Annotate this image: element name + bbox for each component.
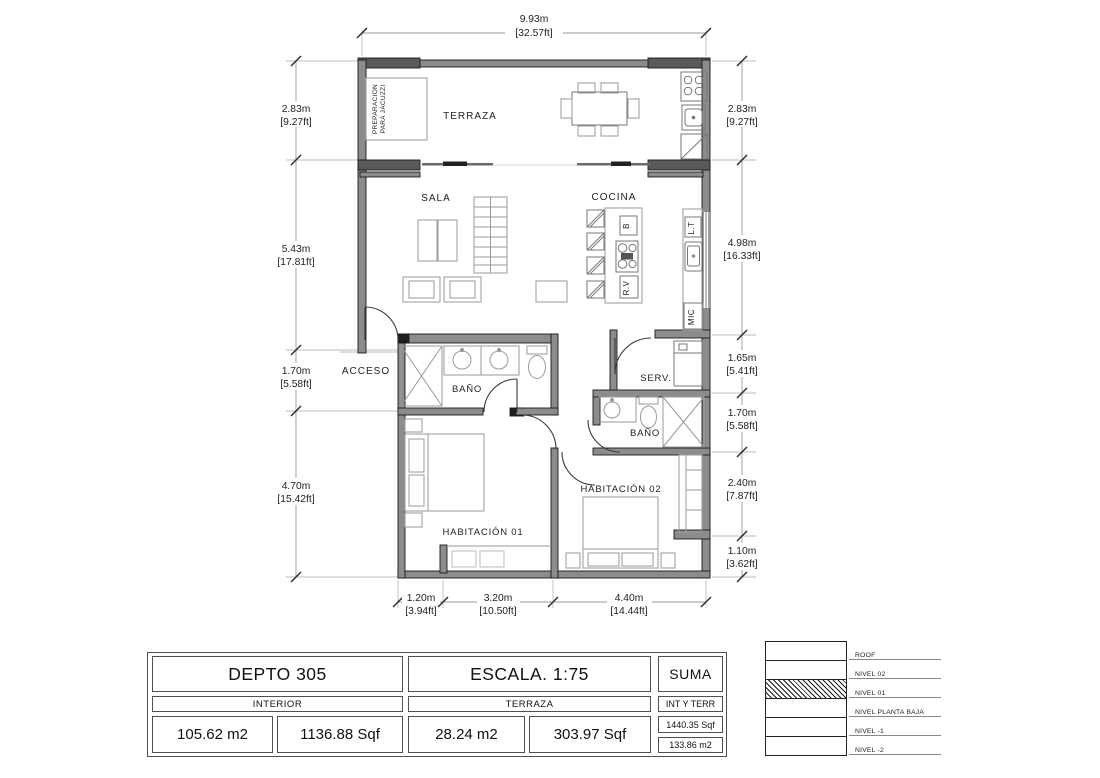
nightstand	[566, 553, 580, 568]
dim-left-3-ft: [15.42ft]	[277, 494, 314, 505]
level-box-roof	[765, 641, 847, 661]
sink-icon	[604, 402, 620, 418]
dim-left-0-ft: [9.27ft]	[280, 117, 312, 128]
dim-right-0-ft: [9.27ft]	[726, 117, 758, 128]
sliding-panel-left-handle	[443, 162, 467, 167]
walls	[358, 58, 710, 578]
laundry-unit	[674, 341, 702, 386]
dim-right-4-m: 2.40m	[728, 478, 757, 489]
sink-icon	[490, 351, 508, 369]
armchair	[403, 277, 440, 302]
dim-right-2-ft: [5.41ft]	[726, 366, 758, 377]
dim-left-0-m: 2.83m	[282, 104, 311, 115]
closet-module	[480, 551, 504, 567]
window-cocina	[702, 212, 710, 308]
sofa	[474, 197, 507, 273]
level-box-planta-baja	[765, 698, 847, 718]
hab02-door-arc	[562, 452, 595, 485]
subheader-interior: INTERIOR	[152, 696, 403, 712]
interior-area-m2: 105.62 m2	[152, 716, 273, 753]
wall-divider-right-block	[648, 160, 710, 170]
wall-serv-north	[655, 330, 710, 338]
dim-right-5-ft: [3.62ft]	[726, 559, 758, 570]
level-label-planta-baja: NIVEL PLANTA BAJA	[849, 707, 941, 717]
dim-left-1-m: 5.43m	[282, 244, 311, 255]
nightstand	[405, 419, 422, 432]
wall-left-terraza	[358, 60, 366, 160]
total-area-m2: 133.86 m2	[658, 737, 723, 753]
terraza-sink-icon	[682, 105, 705, 130]
wall-bedroom-divider	[551, 448, 558, 578]
dim-left-2-m: 1.70m	[282, 366, 311, 377]
total-area-sqf: 1440.35 Sqf	[658, 716, 723, 733]
room-label-habitacion02: HABITACIÓN 02	[581, 484, 662, 495]
dim-bottom-2-m: 4.40m	[615, 593, 644, 604]
level-label-nivel-minus1: NIVEL -1	[849, 726, 941, 736]
level-box-nivel-02	[765, 660, 847, 680]
dim-left-1-ft: [17.81ft]	[277, 257, 314, 268]
dim-bottom-1-m: 3.20m	[484, 593, 513, 604]
wall-pilaster-top-right	[648, 58, 710, 68]
level-box-nivel-01-current	[765, 679, 847, 699]
coffee-table	[418, 220, 437, 261]
dim-left-3-m: 4.70m	[282, 481, 311, 492]
wall-banio1-south	[516, 408, 558, 415]
level-label-roof: ROOF	[849, 650, 941, 660]
dining-set	[561, 83, 639, 136]
wall-entry-jamb	[398, 334, 409, 343]
entry-door-arc	[365, 307, 398, 340]
fixture-label-mic: MIC	[687, 309, 696, 325]
bar-stools	[587, 210, 604, 298]
terraza-area-m2: 28.24 m2	[408, 716, 525, 753]
sliding-panel-right-handle	[611, 162, 631, 167]
coffee-table	[438, 220, 457, 261]
wall-banio2-north	[593, 390, 710, 397]
room-label-cocina: COCINA	[592, 192, 637, 203]
wall-pilaster-top-left	[358, 58, 420, 68]
dim-bottom-2-ft: [14.44ft]	[610, 606, 647, 617]
fixture-label-b: B	[622, 223, 631, 229]
bed-hab02	[566, 497, 675, 568]
banio2-fixtures	[599, 397, 704, 447]
dim-right-1-ft: [16.33ft]	[723, 251, 760, 262]
wall-cocina-stub	[648, 172, 703, 177]
dim-bottom-0-ft: [3.94ft]	[405, 606, 437, 617]
note-jacuzzi-line1: PREPARACION	[372, 84, 379, 134]
title-suma: SUMA	[658, 656, 723, 692]
dim-right-0-m: 2.83m	[728, 104, 757, 115]
dim-right-4-ft: [7.87ft]	[726, 491, 758, 502]
room-label-terraza: TERRAZA	[443, 111, 497, 122]
dim-bottom-0-m: 1.20m	[407, 593, 436, 604]
wall-banio1-east	[551, 334, 558, 415]
note-jacuzzi-line2: PARA JACUZZI	[380, 85, 387, 134]
subheader-int-y-terr: INT Y TERR	[658, 696, 723, 712]
toilet-icon	[529, 356, 546, 379]
toilet-tank	[639, 397, 658, 404]
dim-bottom-1-ft: [10.50ft]	[479, 606, 516, 617]
armchair	[444, 277, 481, 302]
floor-plan-sheet: 9.93m [32.57ft] 2.83m [9.27ft] 5.43m [17…	[0, 0, 1100, 778]
wall-sala-south	[398, 334, 558, 343]
hab01-door-arc	[522, 415, 556, 449]
room-labels: TERRAZA SALA COCINA ACCESO BAÑO SERV. BA…	[342, 84, 696, 538]
dim-top-ft: [32.57ft]	[515, 28, 552, 39]
vanity-counter	[599, 397, 636, 422]
room-label-habitacion01: HABITACIÓN 01	[443, 527, 524, 538]
title-unit: DEPTO 305	[152, 656, 403, 692]
wall-sala-stub	[360, 172, 420, 177]
terraza-area-sqf: 303.97 Sqf	[529, 716, 651, 753]
banio1-fixtures	[401, 346, 547, 406]
room-label-acceso: ACCESO	[342, 366, 390, 377]
interior-area-sqf: 1136.88 Sqf	[277, 716, 403, 753]
dim-right-2-m: 1.65m	[728, 353, 757, 364]
title-scale: ESCALA. 1:75	[408, 656, 651, 692]
fixture-label-lt: L.T	[687, 221, 696, 234]
nightstand	[661, 553, 675, 568]
level-label-nivel-02: NIVEL 02	[849, 669, 941, 679]
dim-right-3-ft: [5.58ft]	[726, 421, 758, 432]
closet-module	[452, 551, 476, 567]
sliding-doors	[420, 162, 650, 167]
dim-right-5-m: 1.10m	[728, 546, 757, 557]
room-label-serv: SERV.	[640, 373, 671, 384]
wall-divider-left-block	[358, 160, 420, 170]
room-label-banio2: BAÑO	[630, 428, 660, 439]
dim-top-m: 9.93m	[520, 14, 549, 25]
side-table	[536, 281, 567, 302]
serv-door-arc	[615, 338, 651, 374]
level-box-nivel-minus2	[765, 736, 847, 756]
toilet-icon	[641, 406, 657, 428]
bed-hab01	[405, 419, 484, 527]
wall-hab01-north	[398, 408, 483, 415]
closet-hab02	[679, 455, 702, 532]
sink-icon	[453, 351, 471, 369]
dim-right-3-m: 1.70m	[728, 408, 757, 419]
wall-closet-stub-hab01	[440, 545, 447, 573]
wall-banio2-south	[593, 448, 710, 455]
fixture-label-rv: R.V	[622, 280, 631, 295]
banio1-door-arc	[484, 379, 517, 412]
level-label-nivel-minus2: NIVEL -2	[849, 745, 941, 755]
dim-right-1-m: 4.98m	[728, 238, 757, 249]
room-label-banio1: BAÑO	[452, 384, 482, 395]
dim-left-2-ft: [5.58ft]	[280, 379, 312, 390]
level-box-nivel-minus1	[765, 717, 847, 737]
floor-plan-drawing: 9.93m [32.57ft] 2.83m [9.27ft] 5.43m [17…	[0, 0, 1100, 650]
nightstand	[405, 513, 422, 527]
level-label-nivel-01: NIVEL 01	[849, 688, 941, 698]
toilet-tank	[527, 346, 547, 354]
subheader-terraza: TERRAZA	[408, 696, 651, 712]
room-label-sala: SALA	[421, 193, 451, 204]
